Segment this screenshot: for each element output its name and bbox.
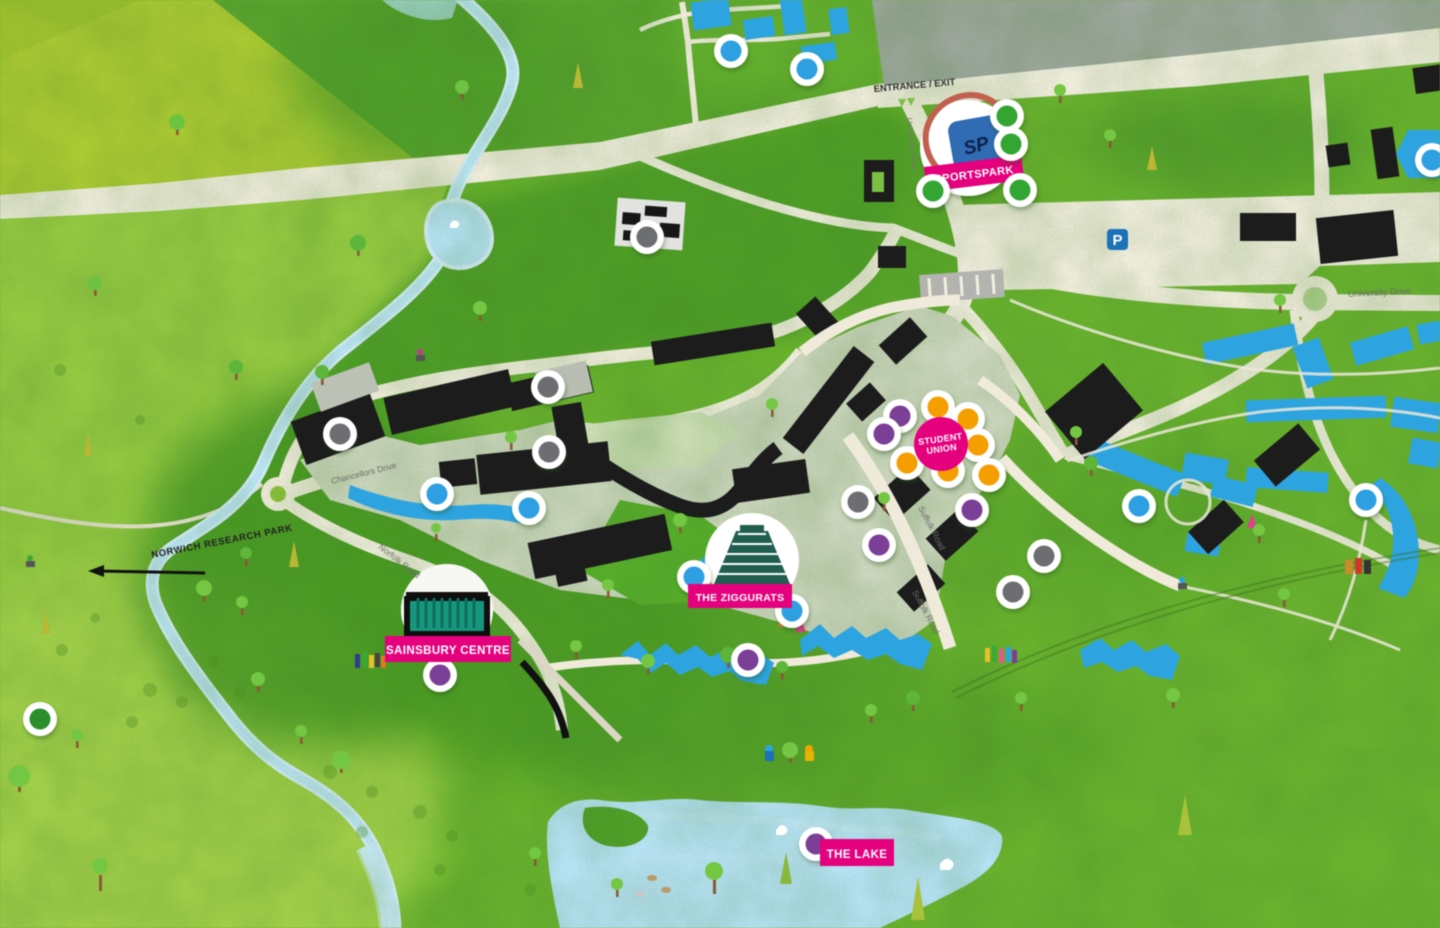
svg-text:SAINSBURY CENTRE: SAINSBURY CENTRE: [386, 645, 510, 657]
svg-text:P: P: [1112, 232, 1122, 249]
svg-text:THE ZIGGURATS: THE ZIGGURATS: [696, 592, 785, 604]
svg-text:THE LAKE: THE LAKE: [827, 849, 888, 861]
